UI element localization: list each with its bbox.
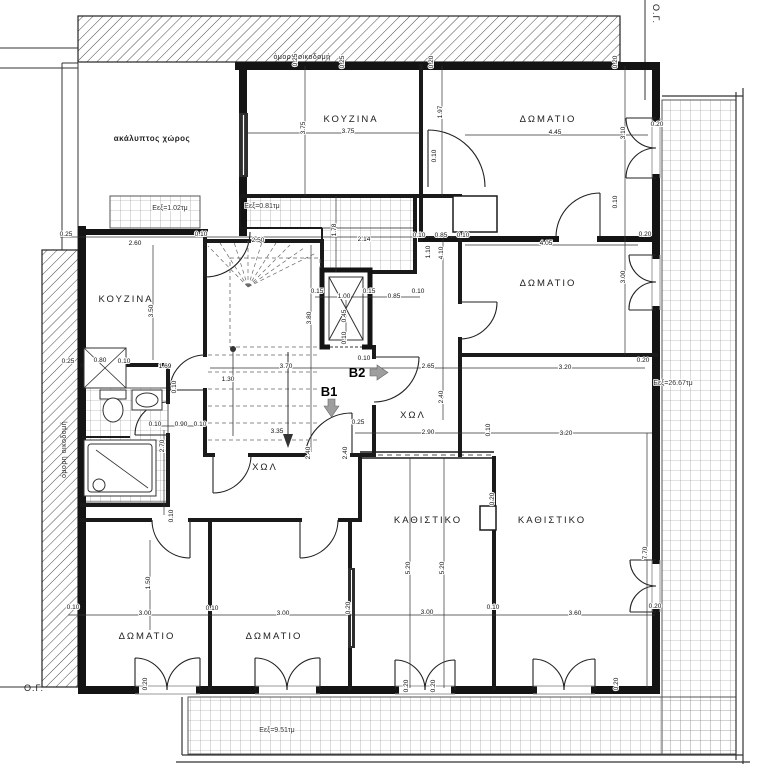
floor-plan-canvas: B2 B1 όμορη οικοδομή όμορη οικοδομή Ο.Γ.… (0, 0, 765, 770)
dimension-label: 1.30 (222, 376, 235, 383)
adjacent-building-label-left: όμορη οικοδομή (60, 421, 68, 478)
dimension-label: 2.50 (252, 237, 265, 244)
light-well-center-top (240, 196, 415, 228)
dimension-label: 2.40 (438, 390, 445, 403)
dimension-label: 3.70 (280, 363, 293, 370)
room-label: ΔΩΜΑΤΙΟ (119, 631, 176, 642)
dimension-label: 3.75 (300, 121, 307, 134)
dimension-label: 0.20 (142, 677, 149, 690)
area-label: Εεξ=9.51τμ (259, 727, 294, 734)
dimension-label: 4.10 (438, 246, 445, 259)
dimension-label: 0.90 (175, 421, 188, 428)
room-label: ΚΟΥΖΙΝΑ (98, 294, 153, 305)
dimension-label: 0.85 (435, 232, 448, 239)
dimension-label: 0.20 (403, 679, 410, 692)
dimension-label: 0.20 (612, 55, 619, 68)
room-label: ΔΩΜΑΤΙΟ (246, 631, 303, 642)
dimension-label: 0.10 (149, 421, 162, 428)
balcony-right (662, 100, 736, 755)
room-label: ΧΩΛ (400, 410, 426, 421)
dimension-label: 3.10 (620, 126, 627, 139)
dimension-label: 3.75 (342, 128, 355, 135)
dimension-label: 0.20 (613, 677, 620, 690)
dimension-label: 0.25 (339, 55, 346, 68)
dimension-label: 4.45 (549, 129, 562, 136)
area-label: Εεξ=26.67τμ (653, 380, 692, 387)
dimension-label: 5.20 (405, 561, 412, 574)
party-wall-top (78, 16, 620, 62)
dimension-label: 0.10 (412, 288, 425, 295)
dimension-label: 2.40 (305, 446, 312, 459)
dimension-label: 0.20 (345, 601, 352, 614)
dimension-label: 3.50 (148, 304, 155, 317)
dimension-label: 0.25 (60, 231, 73, 238)
dimension-label: 3.00 (620, 270, 627, 283)
dimension-label: 3.00 (139, 610, 152, 617)
dimension-label: 0.10 (358, 355, 371, 362)
dimension-label: 0.20 (489, 492, 496, 505)
dimension-label: 0.15 (363, 288, 376, 295)
balcony-bottom (188, 697, 736, 754)
column (480, 506, 496, 530)
room-label: ΔΩΜΑΤΙΟ (520, 278, 577, 289)
dimension-label: 2.90 (422, 429, 435, 436)
dimension-label: 0.85 (388, 293, 401, 300)
toilet-icon (103, 398, 123, 422)
dimension-label: 0.20 (430, 679, 437, 692)
closet-niche (453, 196, 497, 232)
area-label: Εεξ=1.02τμ (152, 205, 187, 212)
dimension-label: 0.10 (457, 232, 470, 239)
dimension-label: 2.65 (422, 363, 435, 370)
dimension-label: 2.60 (129, 240, 142, 247)
dimension-label: 0.20 (651, 121, 664, 128)
dimension-label: 0.80 (94, 357, 107, 364)
dimension-label: 0.10 (413, 232, 426, 239)
dimension-label: 2.14 (358, 236, 371, 243)
dimension-label: 7.70 (642, 546, 649, 559)
dimension-label: 2.70 (159, 439, 166, 452)
dimension-label: 0.10 (612, 195, 619, 208)
dimension-label: 0.10 (206, 605, 219, 612)
dimension-label: 3.20 (559, 364, 572, 371)
building-line-label-top-right: Ο.Γ. (651, 4, 661, 24)
dimension-label: 0.10 (341, 331, 348, 344)
dimension-label: 0.20 (428, 55, 435, 68)
dimension-label: 0.10 (168, 509, 175, 522)
dimension-label: 3.60 (569, 610, 582, 617)
dimension-label: 0.15 (311, 288, 324, 295)
dimension-label: 0.20 (637, 357, 650, 364)
dimension-label: 4.05 (540, 240, 553, 247)
dimension-label: 3.80 (306, 311, 313, 324)
dimension-label: 1.97 (437, 105, 444, 118)
b1-label: B1 (321, 384, 338, 399)
dimension-label: 0.25 (62, 358, 75, 365)
dimension-label: 3.20 (560, 430, 573, 437)
adjacent-building-label-top: όμορη οικοδομή (273, 53, 330, 61)
room-label: ακάλυπτος χώρος (114, 134, 190, 143)
dimension-label: 3.00 (277, 610, 290, 617)
b2-label: B2 (349, 365, 366, 380)
dimension-label: 0.10 (118, 358, 131, 365)
room-label: ΚΑΘΙΣΤΙΚΟ (394, 515, 462, 526)
dimension-label: 2.40 (342, 446, 349, 459)
dimension-label: 1.78 (331, 223, 338, 236)
dimension-label: 5.20 (439, 561, 446, 574)
dimension-label: 0.25 (292, 53, 299, 66)
room-label: ΚΟΥΖΙΝΑ (323, 114, 378, 125)
dimension-label: 3.00 (421, 609, 434, 616)
party-wall-left (42, 250, 78, 687)
dimension-label: 0.10 (194, 421, 207, 428)
room-label: ΔΩΜΑΤΙΟ (520, 114, 577, 125)
area-label: Εεξ=0.81τμ (244, 203, 279, 210)
dimension-label: 1.10 (425, 245, 432, 258)
dimension-label: 1.69 (159, 363, 172, 370)
dimension-label: 0.10 (431, 149, 438, 162)
dimension-label: 3.35 (271, 428, 284, 435)
dimension-label: 1.00 (338, 293, 351, 300)
washbasin-bowl (136, 393, 158, 407)
dimension-label: 0.20 (639, 231, 652, 238)
dimension-label: 0.45 (341, 309, 348, 322)
dimension-label: 1.50 (145, 576, 152, 589)
dimension-label: 0.10 (195, 231, 208, 238)
dimension-label: 0.10 (487, 604, 500, 611)
building-line-label-bottom-left: Ο.Γ. (24, 683, 44, 693)
shower-drain (93, 479, 105, 491)
dimension-label: 0.20 (649, 603, 662, 610)
dimension-label: 0.10 (485, 423, 492, 436)
dimension-label: 0.10 (67, 604, 80, 611)
dimension-label: 0.10 (171, 380, 178, 393)
dimension-label: 0.25 (352, 419, 365, 426)
light-well-left (110, 196, 200, 228)
room-label: ΚΑΘΙΣΤΙΚΟ (518, 515, 586, 526)
room-label: ΧΩΛ (252, 462, 278, 473)
